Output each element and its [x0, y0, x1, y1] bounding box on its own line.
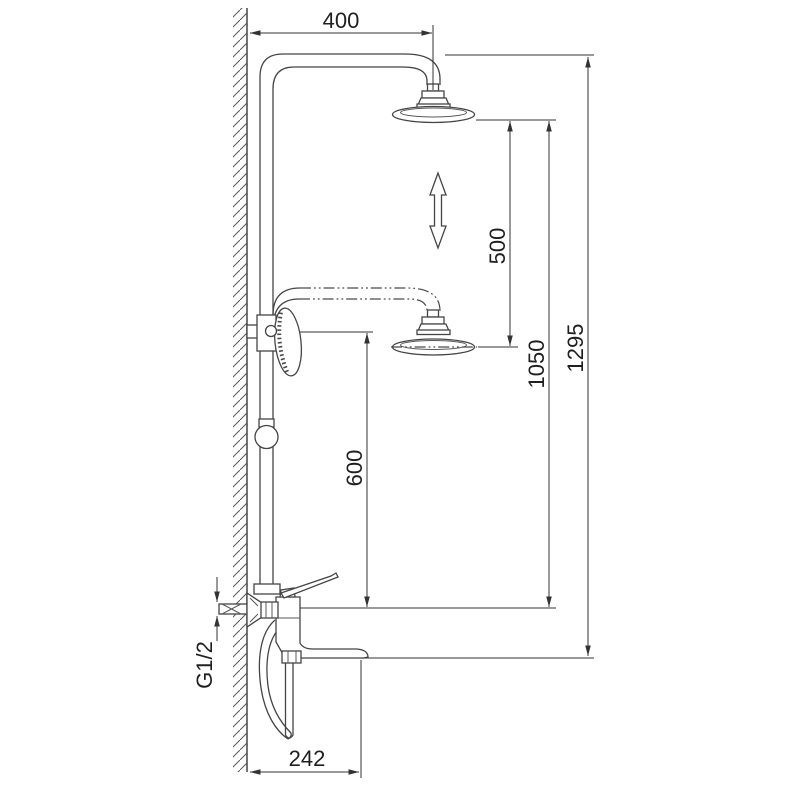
height-adjust-arrow-icon [430, 173, 446, 248]
dim-inlet-thread: G1/2 [192, 577, 217, 689]
dim-label-total-height: 1295 [563, 324, 588, 373]
dim-total-height: 1295 [563, 57, 588, 656]
shower-technical-drawing-canvas: 400 500 1050 1295 600 G1/2 [0, 0, 800, 800]
dim-label-height-adjustment: 500 [485, 228, 510, 265]
slider-ball [255, 419, 278, 449]
inlet-pipe [219, 604, 247, 614]
dimension-annotations: 400 500 1050 1295 600 G1/2 [192, 8, 594, 778]
phantom-arm-bottom [299, 299, 427, 311]
phantom-connector-nut [422, 317, 444, 324]
hose-hex-nut [282, 651, 301, 663]
dim-height-adjustment: 500 [485, 121, 510, 346]
shower-system-drawing: 400 500 1050 1295 600 G1/2 [0, 0, 800, 800]
dim-head-height: 1050 [524, 121, 549, 607]
lowered-shower-phantom [273, 288, 477, 355]
dim-spout-projection: 242 [250, 746, 359, 772]
hose-tube [286, 663, 294, 738]
holder-pivot-knob [266, 326, 277, 337]
mixer-riser-collar [254, 584, 280, 594]
phantom-cone-flange [417, 330, 450, 335]
dim-label-arm-projection: 400 [323, 8, 360, 33]
inlet-flange-cone [247, 593, 262, 627]
inlet-nut [261, 602, 278, 618]
hand-shower-body [272, 307, 305, 377]
head-connector-nut [422, 91, 444, 98]
dim-label-inlet-thread: G1/2 [192, 641, 217, 689]
dim-label-handshower-height: 600 [342, 450, 367, 487]
dim-handshower-height: 600 [342, 333, 367, 607]
dim-label-spout-projection: 242 [289, 746, 326, 771]
wall-hatch [233, 8, 247, 772]
wall-section [233, 8, 247, 772]
handle-lever [281, 573, 338, 598]
dim-label-head-height: 1050 [524, 340, 549, 389]
dim-arm-projection: 400 [250, 8, 432, 33]
mixer-body [276, 597, 368, 658]
slider-ball-knob [255, 426, 278, 449]
phantom-connector-stem [428, 310, 439, 317]
